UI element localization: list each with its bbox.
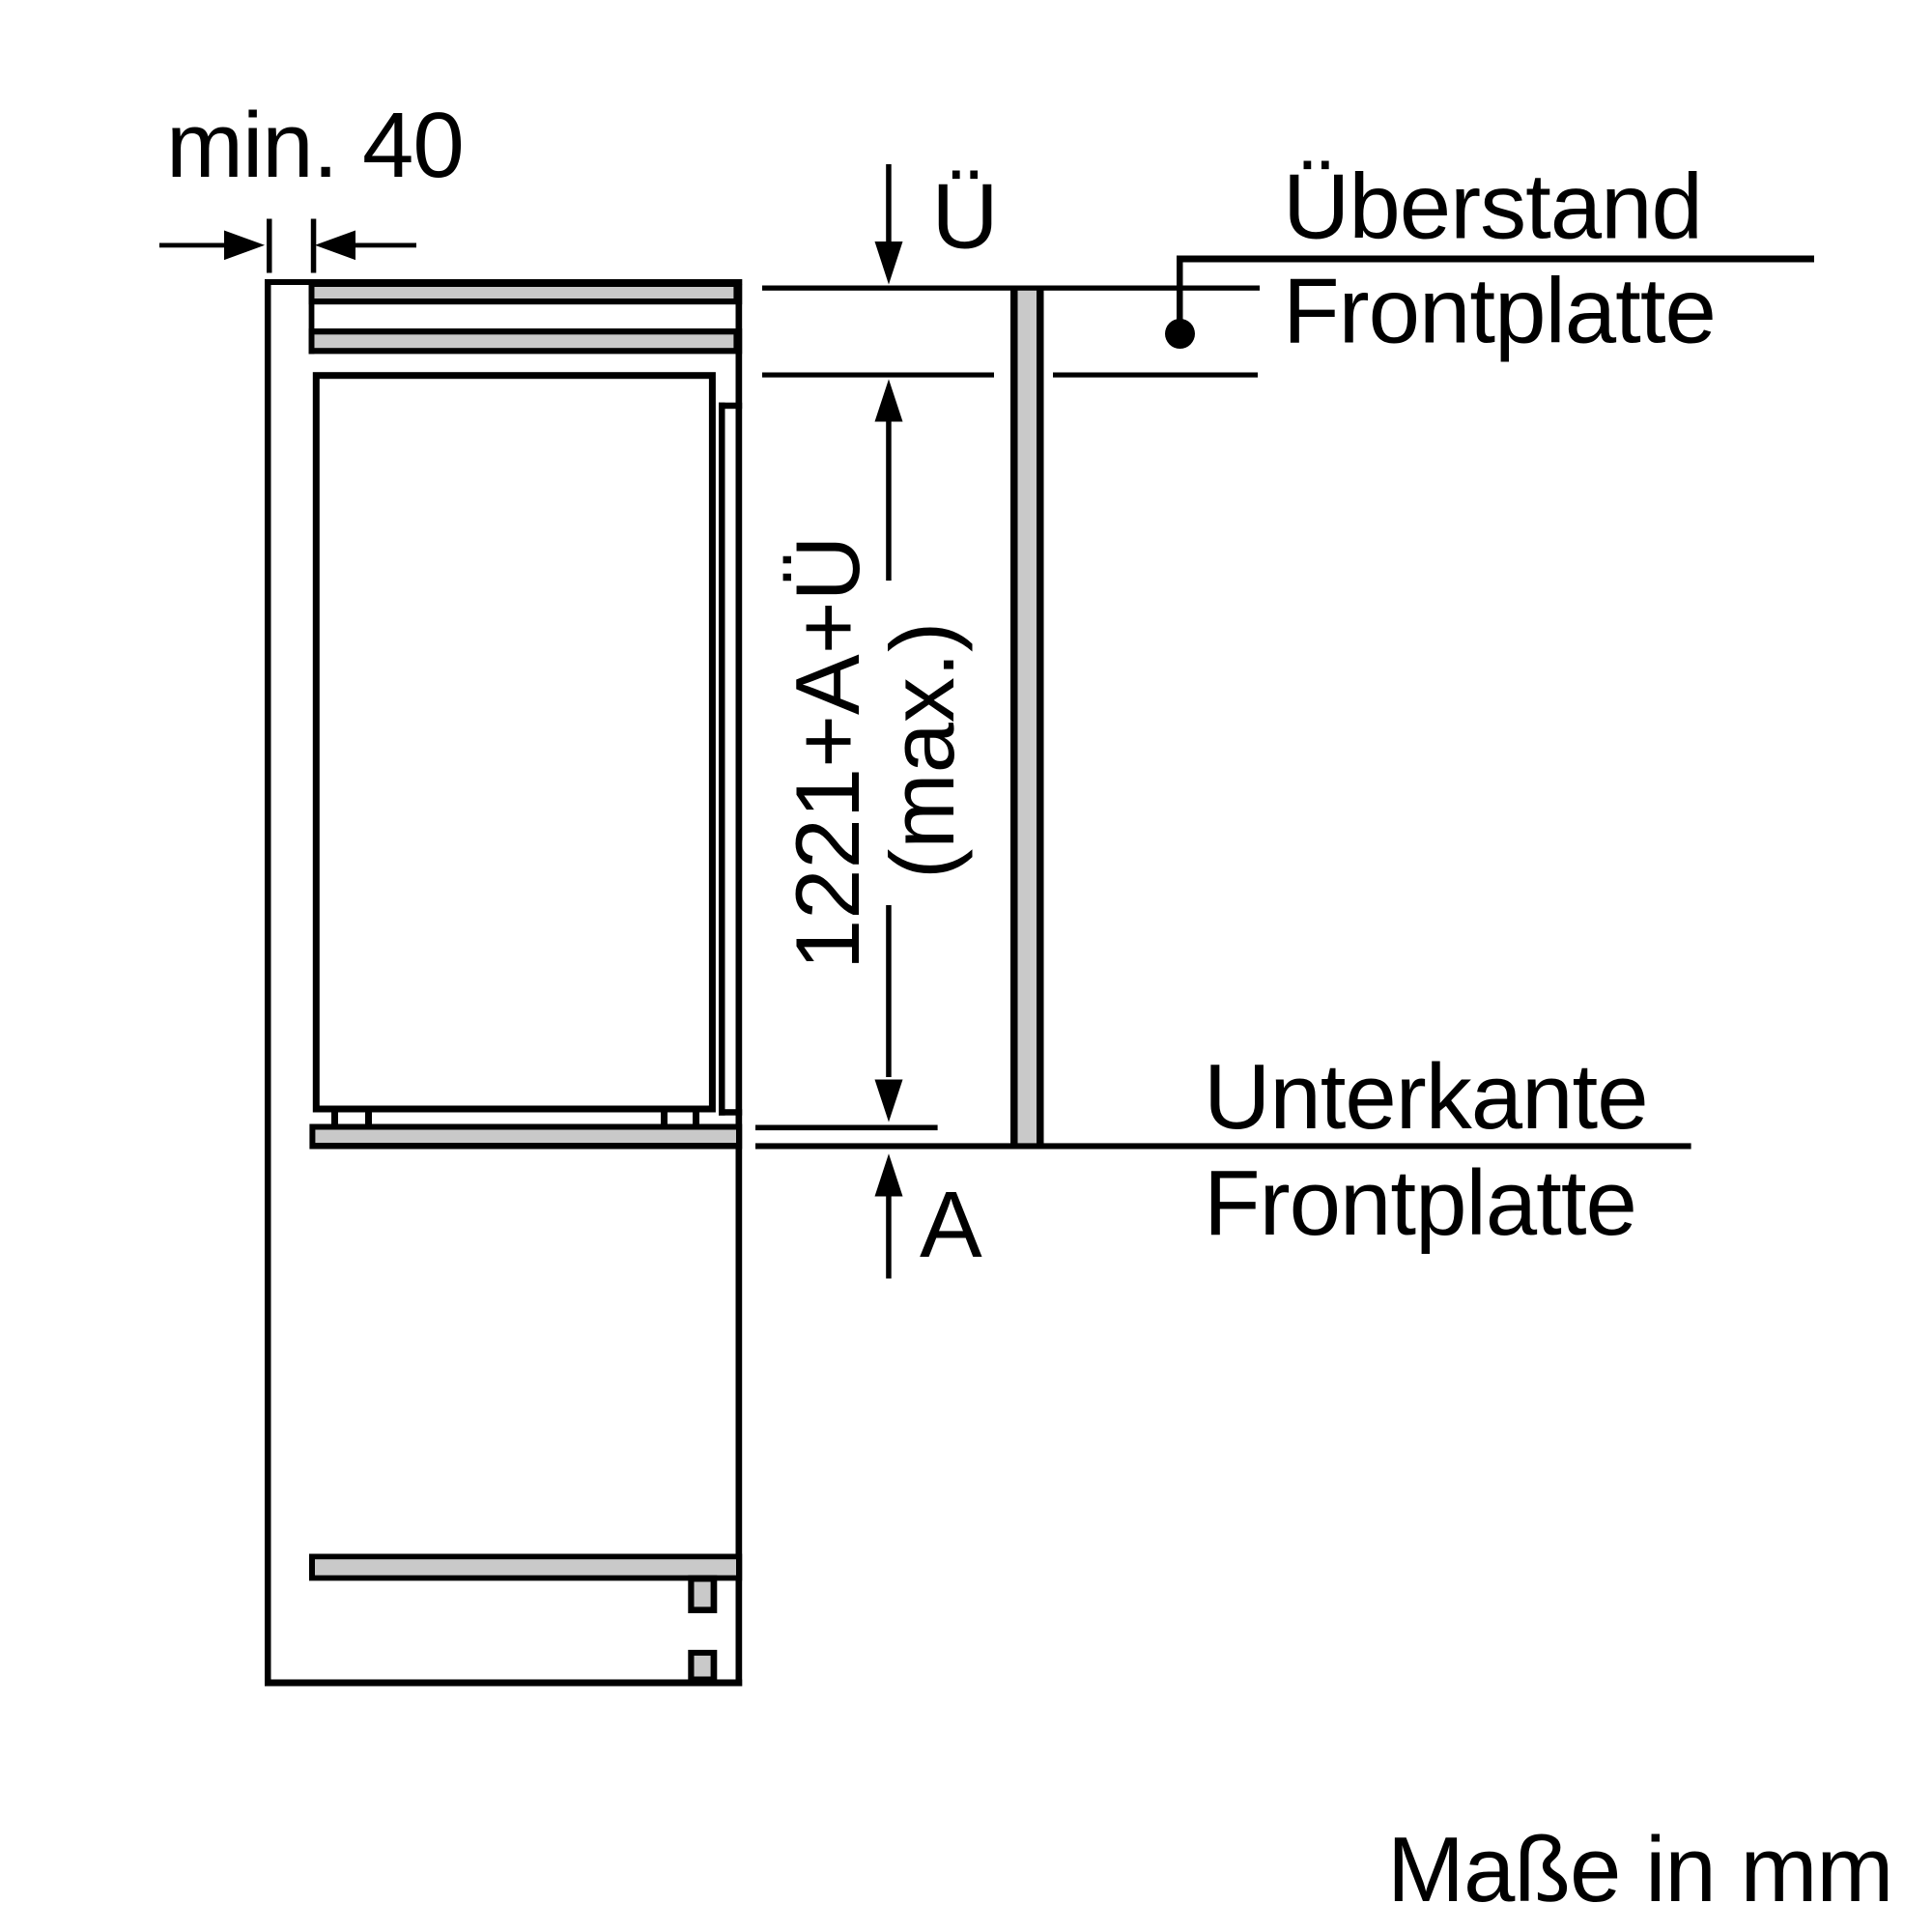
svg-text:1221+A+Ü: 1221+A+Ü [777,536,878,970]
svg-text:Überstand: Überstand [1283,156,1702,259]
svg-text:min. 40: min. 40 [166,94,464,197]
svg-text:A: A [920,1172,982,1277]
svg-text:Ü: Ü [931,165,998,269]
svg-text:Frontplatte: Frontplatte [1204,1151,1636,1255]
svg-text:(max.): (max.) [871,622,973,879]
svg-text:Frontplatte: Frontplatte [1283,260,1716,363]
svg-text:Unterkante: Unterkante [1204,1045,1648,1149]
svg-text:Maße in mm: Maße in mm [1387,1818,1892,1921]
